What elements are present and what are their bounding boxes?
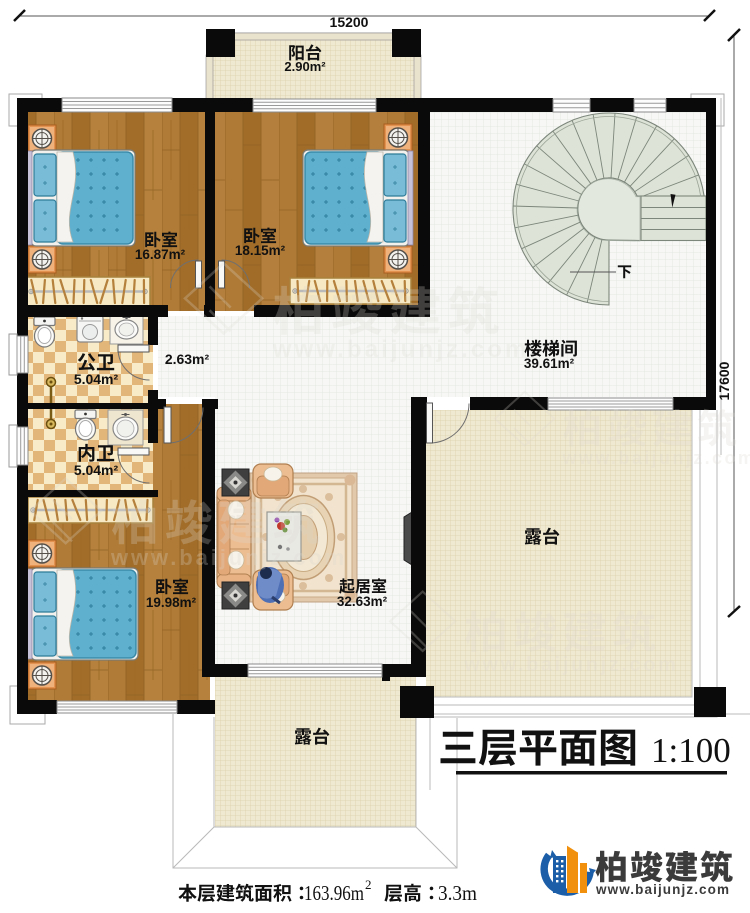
svg-text:39.61m²: 39.61m² <box>524 356 575 371</box>
svg-text:2: 2 <box>365 877 372 892</box>
svg-text:163.96m: 163.96m <box>304 881 364 905</box>
svg-text:17600: 17600 <box>716 361 732 400</box>
svg-text:32.63m²: 32.63m² <box>337 594 388 609</box>
svg-text:19.98m²: 19.98m² <box>146 595 197 610</box>
svg-text:www.baijunjz.com: www.baijunjz.com <box>110 545 347 570</box>
svg-text:2.90m²: 2.90m² <box>284 59 326 74</box>
svg-text:18.15m²: 18.15m² <box>235 243 286 258</box>
svg-text:3.3m: 3.3m <box>438 881 477 905</box>
svg-text:5.04m²: 5.04m² <box>74 462 119 478</box>
svg-text:2.63m²: 2.63m² <box>165 351 210 367</box>
svg-text:www.baijunjz.com: www.baijunjz.com <box>463 654 678 676</box>
svg-text:5.04m²: 5.04m² <box>74 371 119 387</box>
svg-text:15200: 15200 <box>330 14 369 30</box>
svg-text:www.baijunjz.com: www.baijunjz.com <box>272 336 530 363</box>
svg-text:www.baijunjz.com: www.baijunjz.com <box>562 448 750 468</box>
svg-text:www.baijunjz.com: www.baijunjz.com <box>595 882 730 897</box>
svg-text:16.87m²: 16.87m² <box>135 247 186 262</box>
svg-text:1:100: 1:100 <box>651 731 731 770</box>
